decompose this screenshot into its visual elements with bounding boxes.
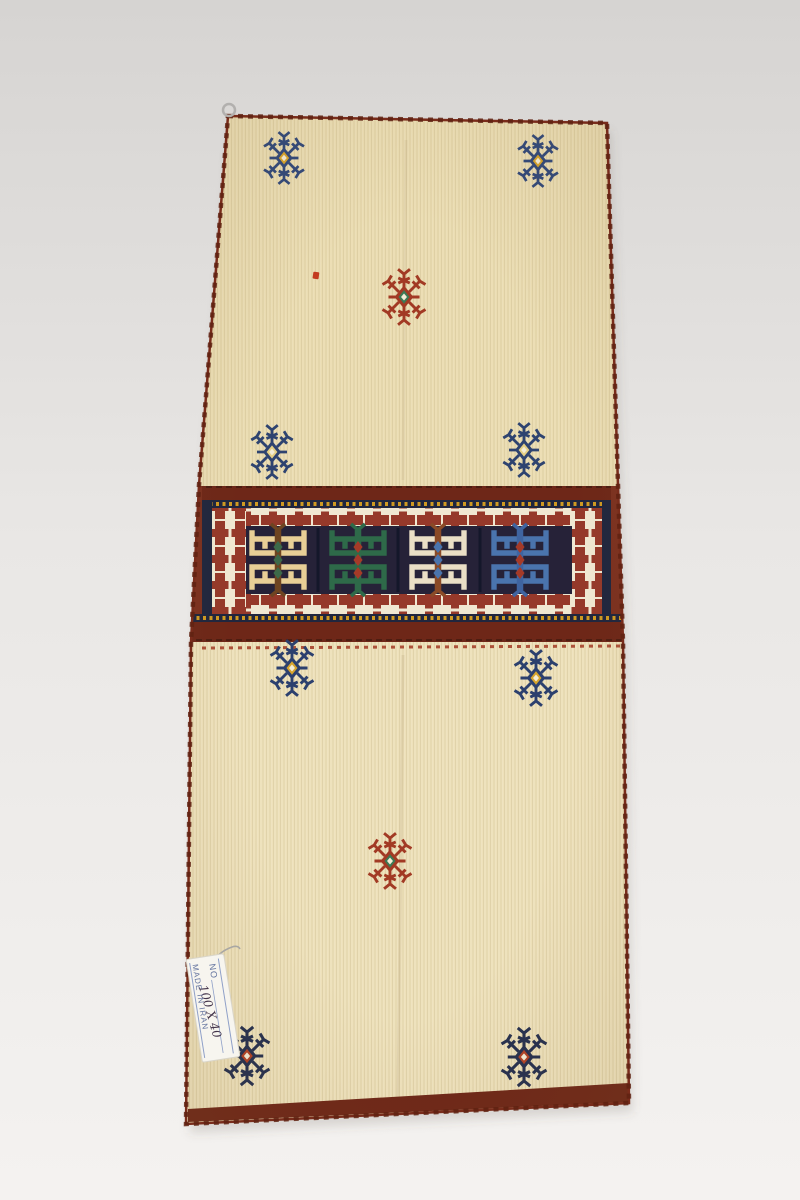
rug bbox=[180, 100, 640, 1140]
photograph: NO 100 X 40 MADE IN IRAN bbox=[0, 0, 800, 1200]
rug-shading bbox=[186, 116, 629, 1124]
